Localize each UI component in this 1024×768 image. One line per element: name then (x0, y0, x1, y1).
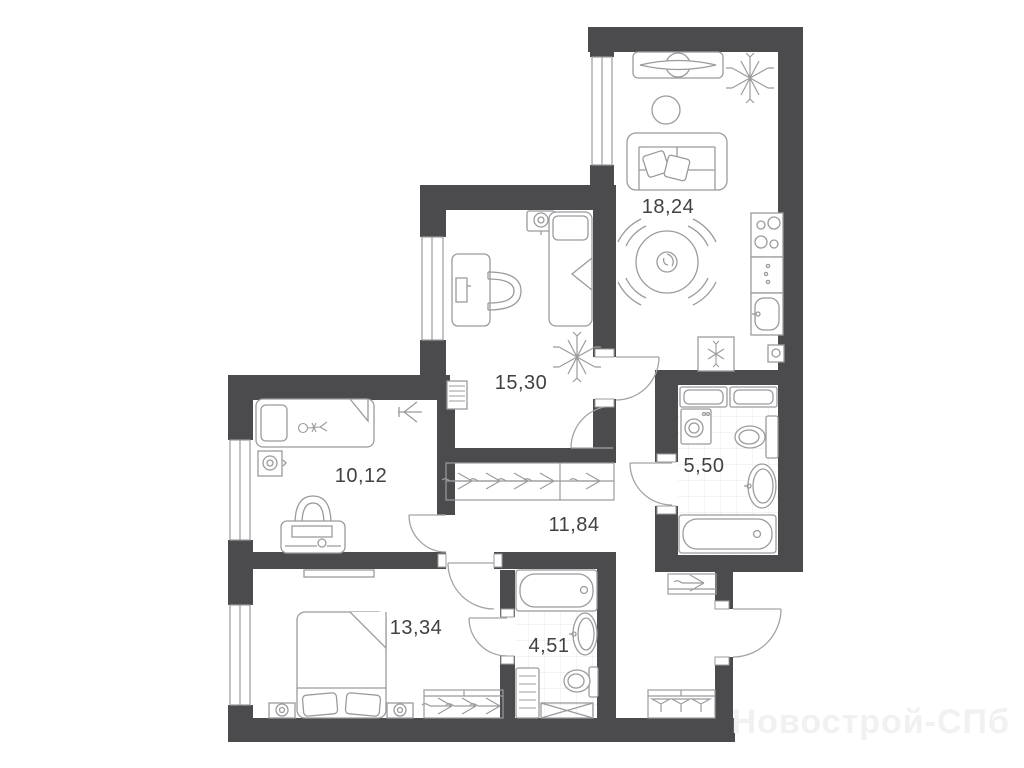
tv-console-icon (633, 52, 723, 78)
area-label-room10: 10,12 (335, 465, 388, 487)
shelf-icon (304, 570, 374, 577)
wall (593, 210, 616, 357)
wardrobe-hangers-icon (422, 690, 503, 718)
bathtub-icon (516, 570, 597, 611)
nightstand-lamp-icon (258, 451, 286, 476)
washing-machine-icon (681, 409, 711, 444)
wall (590, 27, 614, 57)
floor-plan-drawing: 18,24 15,30 10,12 5,50 11,84 13,34 4,51 … (0, 0, 1024, 768)
dining-table-icon (618, 219, 716, 305)
wall (655, 555, 803, 572)
wall (228, 570, 253, 605)
area-label-living: 18,24 (642, 196, 695, 218)
desk-chair-icon (488, 272, 521, 310)
window-bedroom (226, 605, 255, 705)
area-label-room15: 15,30 (495, 372, 548, 394)
wall (228, 718, 735, 742)
wall (420, 185, 616, 210)
plant-icon (726, 53, 774, 103)
area-label-bedroom: 13,34 (390, 617, 443, 639)
area-label-hallway: 11,84 (548, 514, 599, 536)
wall (655, 385, 678, 462)
wall (440, 448, 616, 463)
window-room-15 (418, 237, 448, 340)
door-bathroom-small (469, 618, 507, 656)
wall (715, 657, 733, 718)
single-bed-icon (549, 212, 592, 326)
radiator-icon (447, 381, 467, 409)
window-living (588, 57, 616, 165)
door-bathroom-big (630, 463, 672, 505)
sofa-icon (627, 133, 727, 190)
bedroom (269, 570, 503, 718)
bathtub-icon (679, 515, 776, 553)
wall (655, 370, 778, 385)
door-entry (733, 609, 781, 657)
desk-icon (281, 521, 345, 553)
nightstand-lamp-icon (269, 703, 295, 718)
floor-plan-page: 18,24 15,30 10,12 5,50 11,84 13,34 4,51 … (0, 0, 1024, 768)
wall (228, 552, 446, 569)
kitchen-cabinet-icon (751, 257, 783, 293)
wall (228, 705, 253, 718)
fridge-icon (698, 337, 734, 371)
wall (500, 656, 515, 718)
door-bedroom (448, 563, 494, 609)
closet-hangers-icon (442, 463, 614, 500)
entry-wardrobe-icon (648, 690, 715, 718)
pouf-icon (652, 96, 680, 124)
wall (228, 375, 450, 400)
towel-radiator-icon (516, 668, 539, 718)
entry-closet-icon (668, 574, 716, 594)
nightstand-lamp-icon (387, 703, 413, 718)
desk-chair-icon (295, 496, 331, 524)
kitchen-sink-icon (751, 293, 783, 335)
stove-icon (751, 213, 783, 257)
wall (420, 210, 446, 237)
window-room-10 (226, 440, 255, 540)
door-living (616, 357, 659, 400)
watermark-text: Новострой-СПб (732, 703, 1010, 741)
area-label-bathroom-small: 4,51 (529, 635, 570, 657)
double-bed-icon (297, 612, 386, 718)
kitchen-vent-icon (768, 345, 784, 362)
wall (228, 400, 253, 440)
wall (588, 27, 803, 52)
kids-bed-icon (256, 399, 374, 447)
desk-icon (452, 254, 490, 326)
wall (597, 555, 616, 718)
toy-plane-icon (398, 402, 422, 422)
door-room-10 (409, 515, 446, 552)
area-label-bathroom-big: 5,50 (684, 455, 725, 477)
